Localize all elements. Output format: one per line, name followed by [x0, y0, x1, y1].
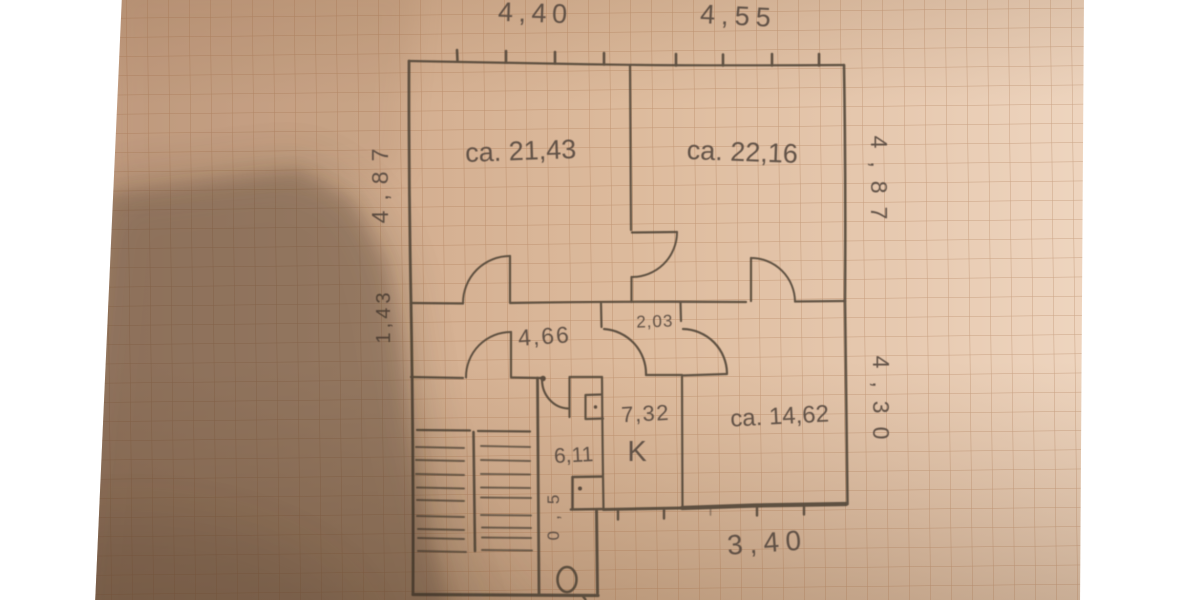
svg-text:ca. 14,62: ca. 14,62: [730, 400, 830, 432]
svg-text:3,40: 3,40: [726, 524, 808, 561]
svg-text:0,5: 0,5: [544, 484, 563, 541]
svg-text:6,11: 6,11: [553, 443, 593, 468]
svg-text:4,87: 4,87: [866, 136, 892, 233]
svg-text:2,03: 2,03: [636, 311, 674, 331]
svg-text:4,55: 4,55: [699, 0, 777, 33]
svg-text:4,66: 4,66: [517, 321, 571, 351]
svg-text:ca. 21,43: ca. 21,43: [465, 134, 577, 168]
svg-text:4,40: 4,40: [498, 0, 574, 29]
svg-text:ca. 22,16: ca. 22,16: [686, 135, 798, 169]
svg-text:K: K: [627, 436, 647, 468]
svg-text:7,32: 7,32: [621, 400, 671, 428]
svg-text:4,30: 4,30: [868, 356, 894, 453]
